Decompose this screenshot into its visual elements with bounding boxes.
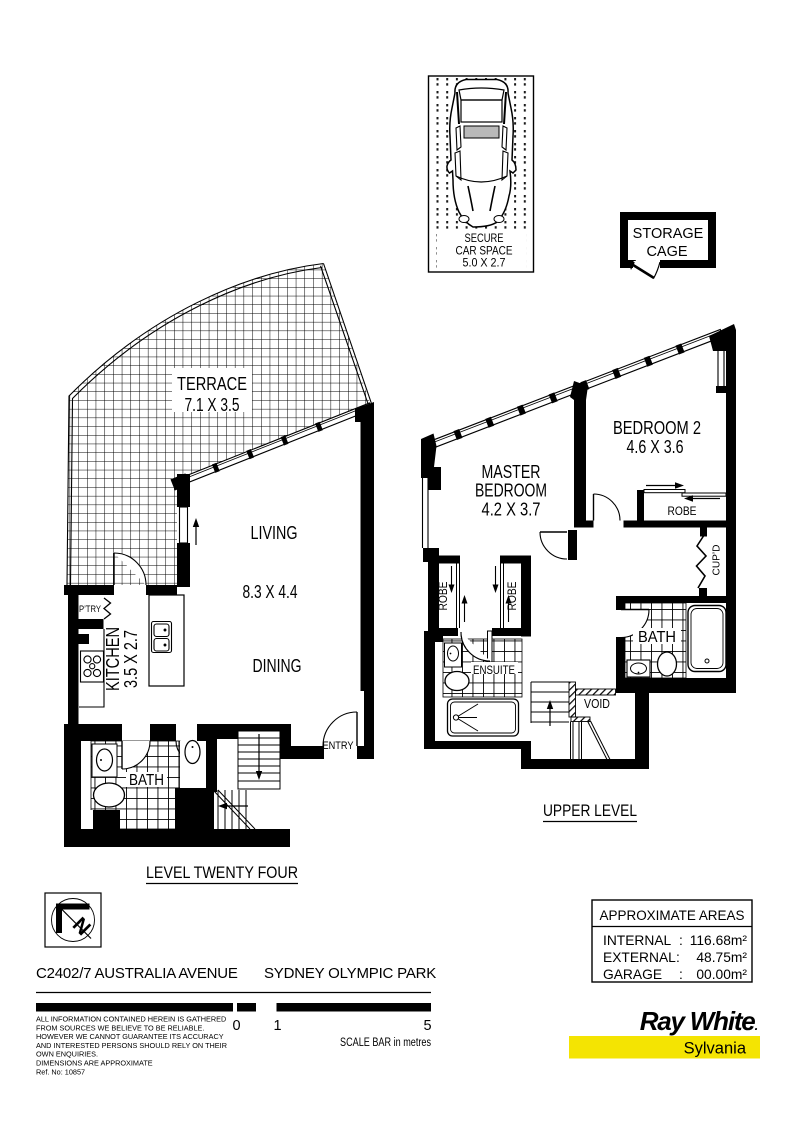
- svg-text:5.0 X 2.7: 5.0 X 2.7: [463, 256, 506, 270]
- svg-text:AND INTERESTED PERSONS SHOULD: AND INTERESTED PERSONS SHOULD RELY ON TH…: [36, 1041, 227, 1050]
- svg-text:MASTER: MASTER: [482, 462, 541, 482]
- svg-text:UPPER LEVEL: UPPER LEVEL: [543, 801, 637, 820]
- svg-text:5: 5: [424, 1018, 432, 1034]
- svg-text:BATH: BATH: [129, 772, 164, 789]
- svg-text:HOWEVER WE CANNOT GUARANTEE IT: HOWEVER WE CANNOT GUARANTEE ITS ACCURACY: [36, 1032, 224, 1041]
- svg-text:8.3 X 4.4: 8.3 X 4.4: [243, 582, 298, 602]
- svg-text:Ref. No: 10857: Ref. No: 10857: [36, 1067, 85, 1076]
- svg-text:Ray White.: Ray White.: [640, 1006, 758, 1036]
- svg-text:BEDROOM 2: BEDROOM 2: [613, 418, 701, 438]
- svg-text:SCALE BAR in metres: SCALE BAR in metres: [340, 1037, 431, 1049]
- svg-text:ENTRY: ENTRY: [323, 740, 355, 752]
- svg-text:ROBE: ROBE: [668, 504, 697, 518]
- svg-text:48.75m²: 48.75m²: [696, 950, 747, 965]
- svg-text:00.00m²: 00.00m²: [696, 967, 747, 982]
- svg-text::: :: [676, 950, 680, 965]
- svg-text:LEVEL TWENTY FOUR: LEVEL TWENTY FOUR: [146, 863, 298, 882]
- svg-text:ENSUITE: ENSUITE: [473, 663, 515, 677]
- svg-text:Sylvania: Sylvania: [684, 1040, 747, 1058]
- svg-text:7.1 X 3.5: 7.1 X 3.5: [185, 395, 240, 415]
- svg-text:TERRACE: TERRACE: [177, 374, 247, 394]
- svg-text:STORAGE: STORAGE: [633, 226, 704, 242]
- svg-text:BEDROOM: BEDROOM: [475, 481, 547, 501]
- svg-text:C2402/7 AUSTRALIA AVENUE: C2402/7 AUSTRALIA AVENUE: [36, 965, 238, 982]
- svg-text:0: 0: [233, 1018, 241, 1034]
- svg-text:EXTERNAL: EXTERNAL: [603, 950, 676, 965]
- svg-text:LIVING: LIVING: [251, 523, 298, 543]
- svg-text::: :: [679, 933, 683, 948]
- svg-text:BATH: BATH: [638, 629, 676, 646]
- svg-text:4.2 X 3.7: 4.2 X 3.7: [482, 500, 541, 520]
- svg-text:CUP’D: CUP’D: [711, 544, 723, 575]
- svg-text:APPROXIMATE AREAS: APPROXIMATE AREAS: [600, 908, 745, 924]
- svg-text:VOID: VOID: [584, 696, 610, 711]
- svg-text:P’TRY: P’TRY: [79, 604, 102, 615]
- svg-text:3.5 X 2.7: 3.5 X 2.7: [121, 630, 141, 688]
- svg-text:ROBE: ROBE: [438, 581, 450, 610]
- svg-text:OWN ENQUIRIES.: OWN ENQUIRIES.: [36, 1050, 98, 1059]
- svg-text:KITCHEN: KITCHEN: [103, 627, 123, 691]
- svg-text:SYDNEY OLYMPIC PARK: SYDNEY OLYMPIC PARK: [264, 965, 436, 982]
- svg-text:FROM SOURCES WE BELIEVE TO BE: FROM SOURCES WE BELIEVE TO BE RELIABLE.: [36, 1023, 204, 1032]
- svg-text:GARAGE: GARAGE: [603, 967, 662, 982]
- svg-text:DIMENSIONS ARE APPROXIMATE: DIMENSIONS ARE APPROXIMATE: [36, 1059, 153, 1068]
- svg-text:DINING: DINING: [253, 656, 302, 676]
- svg-text:ALL INFORMATION CONTAINED HERE: ALL INFORMATION CONTAINED HEREIN IS GATH…: [36, 1015, 226, 1024]
- svg-text:1: 1: [274, 1018, 282, 1034]
- svg-text:CAGE: CAGE: [646, 244, 687, 260]
- svg-text::: :: [679, 967, 683, 982]
- svg-text:ROBE: ROBE: [507, 581, 519, 610]
- svg-text:116.68m²: 116.68m²: [690, 933, 748, 948]
- svg-text:4.6 X 3.6: 4.6 X 3.6: [627, 437, 684, 457]
- svg-text:INTERNAL: INTERNAL: [603, 933, 672, 948]
